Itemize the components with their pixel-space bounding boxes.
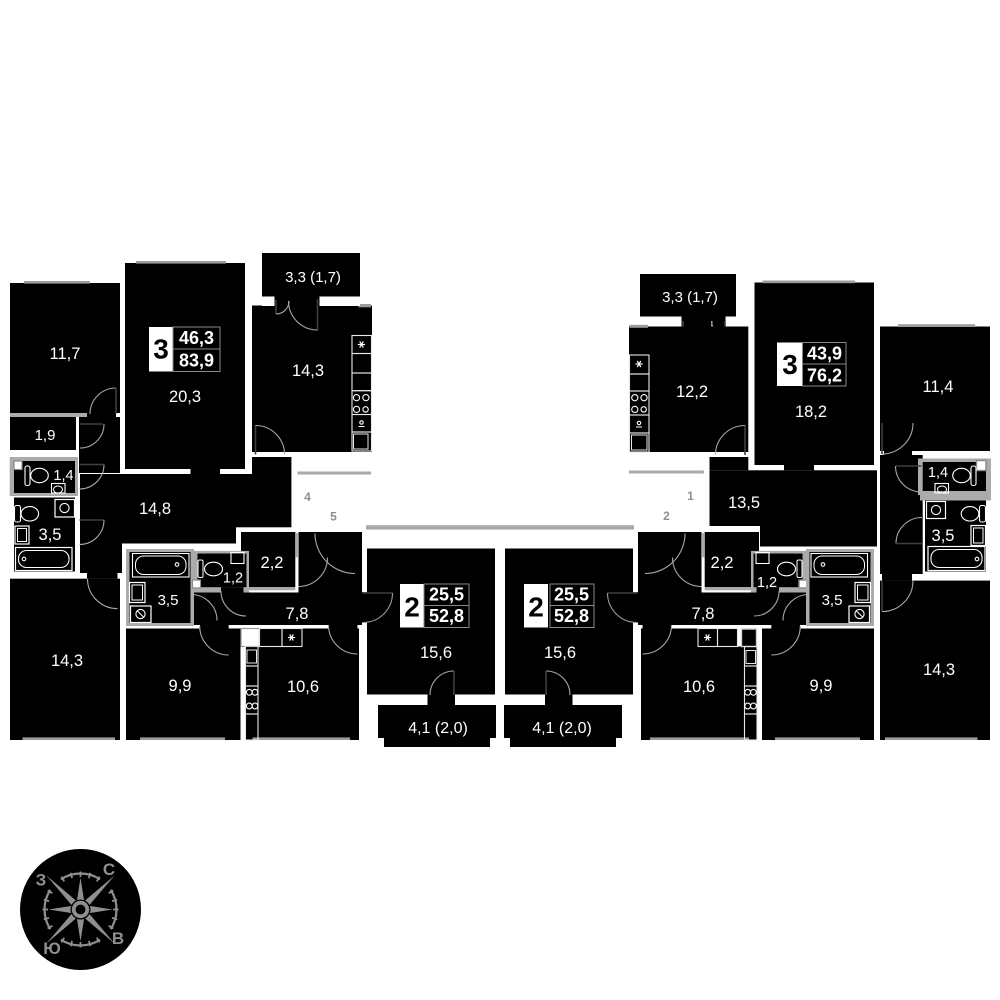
svg-text:7,8: 7,8 <box>692 605 715 623</box>
svg-text:С: С <box>103 860 115 879</box>
svg-text:3,5: 3,5 <box>39 526 62 544</box>
svg-text:52,8: 52,8 <box>429 606 464 626</box>
svg-text:3: 3 <box>782 349 798 380</box>
svg-text:15,6: 15,6 <box>420 644 452 662</box>
svg-text:9,9: 9,9 <box>169 677 192 695</box>
svg-text:9,9: 9,9 <box>810 677 833 695</box>
svg-text:2: 2 <box>663 509 670 523</box>
svg-text:3,3 (1,7): 3,3 (1,7) <box>662 289 718 306</box>
svg-text:14,3: 14,3 <box>923 661 955 679</box>
svg-text:1: 1 <box>687 489 694 503</box>
svg-text:25,5: 25,5 <box>554 585 589 605</box>
svg-text:4,1 (2,0): 4,1 (2,0) <box>408 720 468 737</box>
svg-text:В: В <box>112 929 124 948</box>
svg-text:5: 5 <box>330 510 337 524</box>
svg-text:2: 2 <box>404 592 420 623</box>
svg-text:11,4: 11,4 <box>923 378 954 396</box>
svg-text:7,8: 7,8 <box>286 605 309 623</box>
svg-text:76,2: 76,2 <box>807 366 842 386</box>
svg-text:14,8: 14,8 <box>139 500 171 518</box>
svg-text:1,2: 1,2 <box>223 571 243 587</box>
svg-text:43,9: 43,9 <box>807 344 842 364</box>
svg-text:3,3 (1,7): 3,3 (1,7) <box>285 269 341 286</box>
svg-text:1,4: 1,4 <box>53 468 73 484</box>
svg-text:4,1 (2,0): 4,1 (2,0) <box>532 720 592 737</box>
svg-text:52,8: 52,8 <box>554 606 589 626</box>
svg-text:1,2: 1,2 <box>757 575 777 591</box>
svg-text:25,5: 25,5 <box>429 585 464 605</box>
svg-text:46,3: 46,3 <box>179 328 214 348</box>
svg-text:2: 2 <box>528 592 544 623</box>
svg-text:2,2: 2,2 <box>261 554 284 572</box>
svg-text:12,2: 12,2 <box>676 383 708 401</box>
svg-text:20,3: 20,3 <box>169 388 201 406</box>
svg-text:10,6: 10,6 <box>683 678 715 696</box>
svg-text:18,2: 18,2 <box>795 403 827 421</box>
svg-text:3: 3 <box>153 334 169 365</box>
svg-text:1,9: 1,9 <box>35 427 56 444</box>
svg-text:1,4: 1,4 <box>928 465 948 481</box>
svg-text:14,3: 14,3 <box>292 362 324 380</box>
svg-text:З: З <box>36 871 47 890</box>
svg-text:13,5: 13,5 <box>728 494 760 512</box>
svg-text:3,5: 3,5 <box>932 527 955 545</box>
svg-text:11,7: 11,7 <box>50 345 81 363</box>
svg-text:83,9: 83,9 <box>179 351 214 371</box>
svg-text:14,3: 14,3 <box>51 652 83 670</box>
svg-text:15,6: 15,6 <box>544 644 576 662</box>
svg-text:2,2: 2,2 <box>711 554 734 572</box>
svg-text:3,5: 3,5 <box>158 592 179 609</box>
svg-text:4: 4 <box>304 490 311 504</box>
svg-text:10,6: 10,6 <box>287 678 319 696</box>
svg-text:Ю: Ю <box>43 939 61 958</box>
svg-text:3,5: 3,5 <box>822 592 843 609</box>
